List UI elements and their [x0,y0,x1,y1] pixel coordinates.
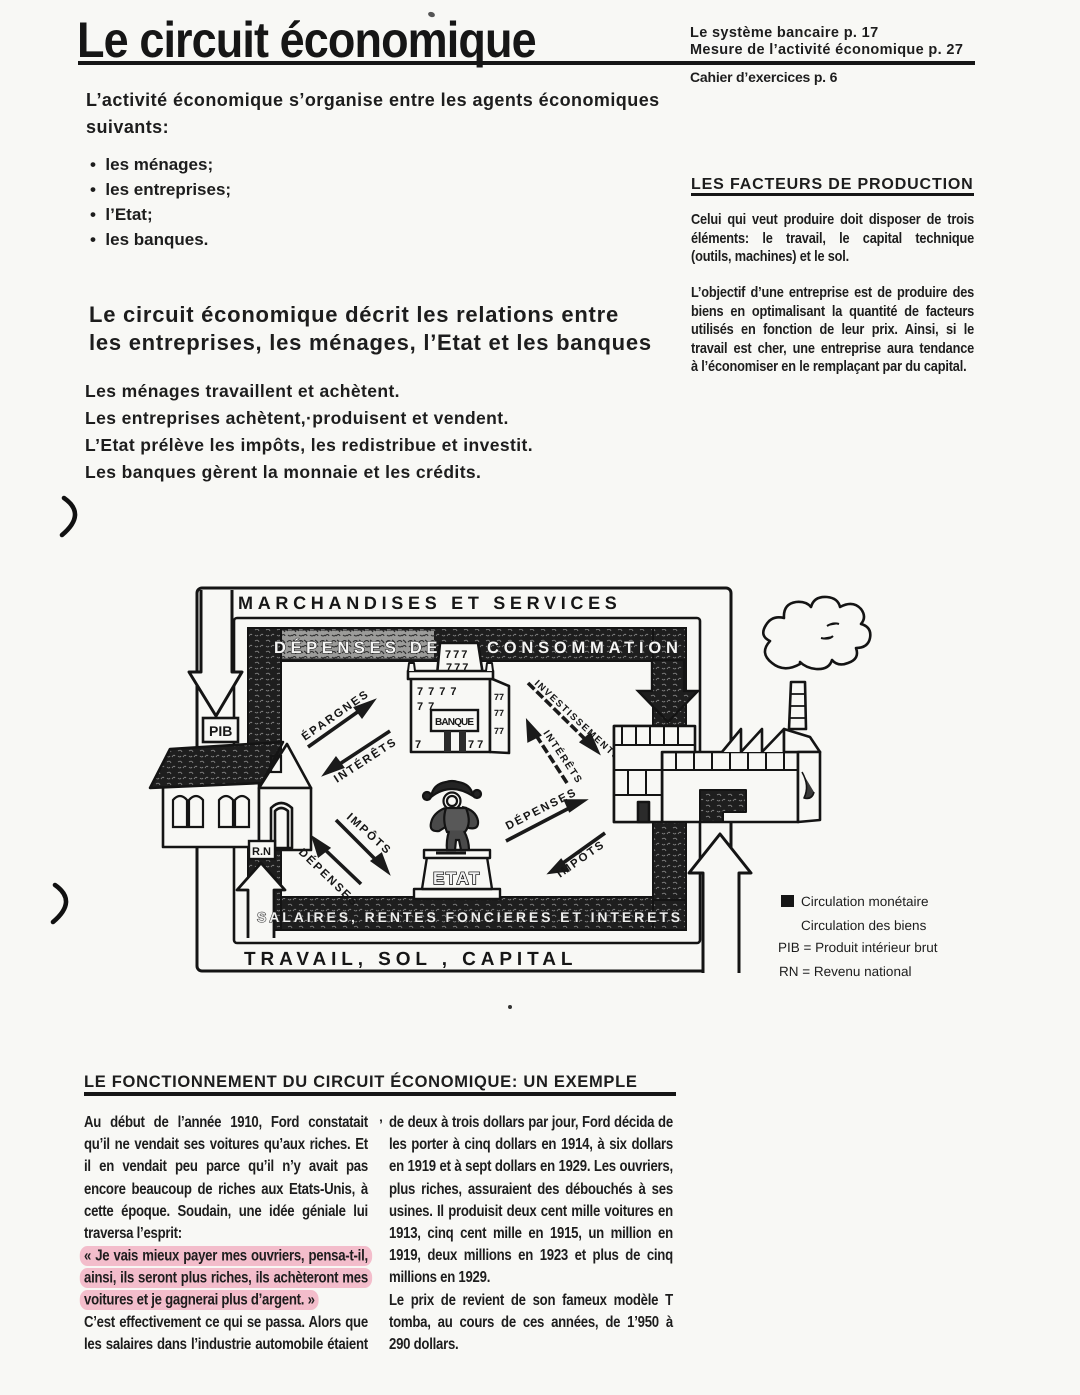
svg-text:SALAIRES, RENTES FONCIERES ET: SALAIRES, RENTES FONCIERES ET INTERETS [257,909,683,925]
svg-text:R.N: R.N [252,846,271,858]
svg-text:Circulation monétaire: Circulation monétaire [801,894,929,909]
svg-text:IMPÔTS: IMPÔTS [554,837,608,881]
svg-text:TRAVAIL, SOL , CAPITAL: TRAVAIL, SOL , CAPITAL [244,949,577,970]
svg-text:7777: 7777 [417,686,461,698]
svg-text:77: 77 [494,708,504,718]
svg-text:MARCHANDISES ET SERVICES: MARCHANDISES ET SERVICES [238,593,622,613]
svg-text:ETAT: ETAT [433,869,481,888]
svg-text:PIB: PIB [209,723,232,739]
svg-text:CONSOMMATION: CONSOMMATION [487,639,683,657]
svg-text:DÉPENSES DE: DÉPENSES DE [274,638,442,657]
svg-text:777: 777 [446,662,470,674]
svg-text:77: 77 [468,739,486,751]
svg-text:77: 77 [494,692,504,702]
svg-text:PIB = Produit intérieur brut: PIB = Produit intérieur brut [778,940,938,955]
svg-text:RN = Revenu national: RN = Revenu national [779,964,911,979]
svg-text:Circulation des biens: Circulation des biens [801,918,927,933]
svg-text:BANQUE: BANQUE [435,717,474,728]
svg-text:77: 77 [494,726,504,736]
svg-text:777: 777 [445,649,469,661]
svg-text:INTÉRÊTS: INTÉRÊTS [331,734,400,785]
svg-text:7: 7 [415,739,424,751]
svg-text:77: 77 [417,701,439,713]
